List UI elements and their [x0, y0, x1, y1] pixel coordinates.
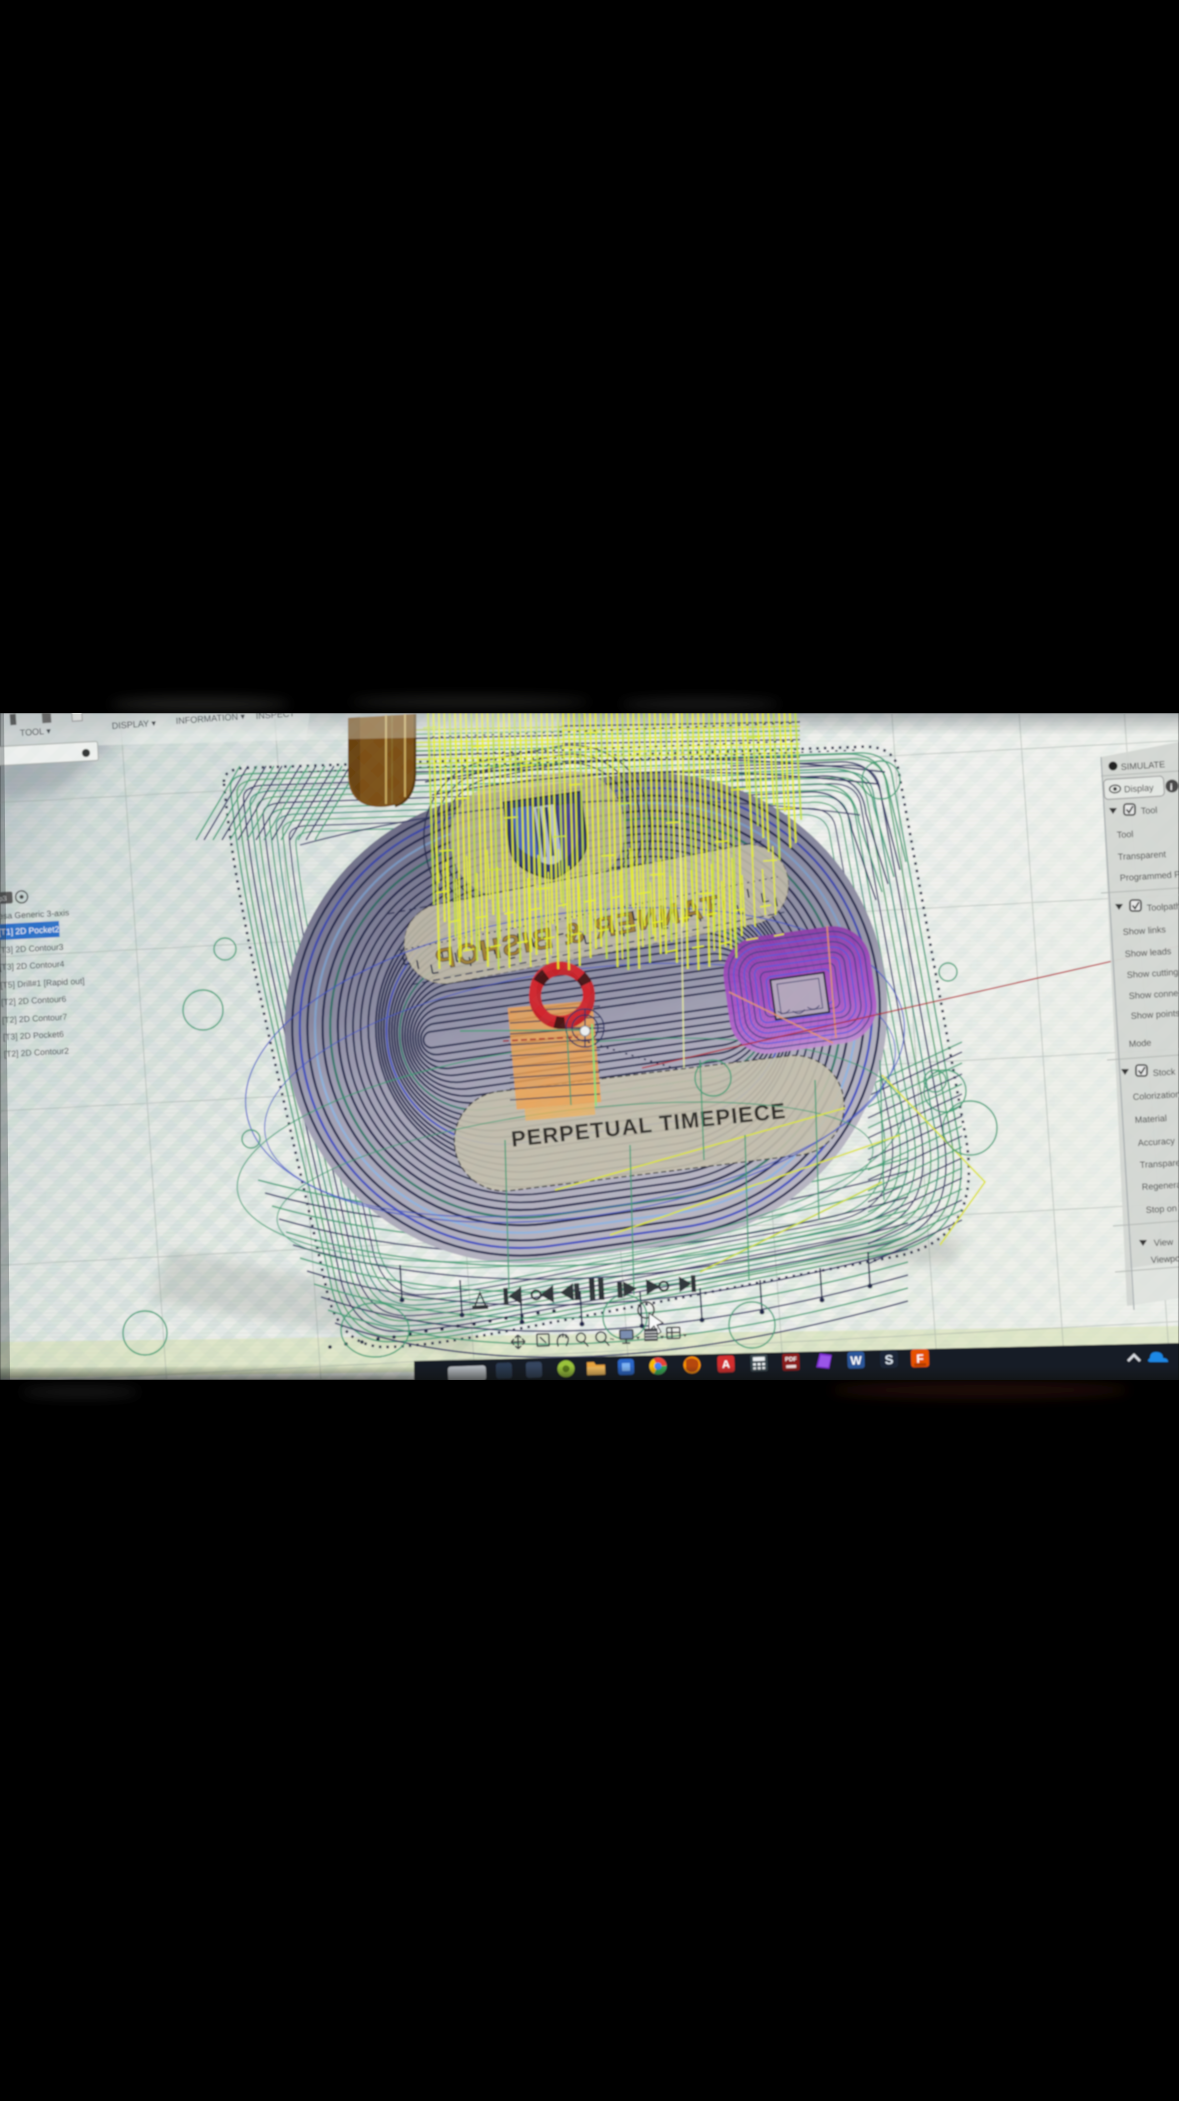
svg-text:W: W: [850, 1353, 862, 1367]
svg-text:PDF: PDF: [785, 1357, 798, 1363]
svg-text:S: S: [884, 1352, 894, 1367]
